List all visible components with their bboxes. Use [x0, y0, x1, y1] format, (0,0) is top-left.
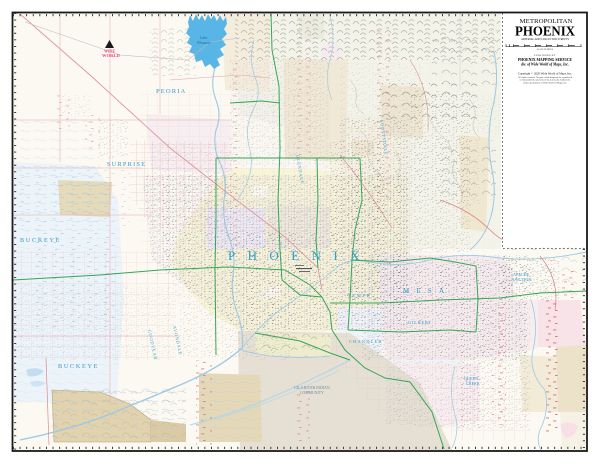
svg-text:GILA RIVER INDIAN: GILA RIVER INDIAN [294, 386, 330, 390]
svg-text:MESA: MESA [403, 287, 451, 295]
svg-text:PHOENIX: PHOENIX [228, 248, 372, 263]
svg-text:Lake: Lake [199, 36, 208, 40]
svg-text:ARTERIAL AND COLLECTOR STREETS: ARTERIAL AND COLLECTOR STREETS [521, 37, 569, 41]
svg-text:PEORIA: PEORIA [156, 88, 186, 95]
svg-text:WORLD: WORLD [102, 53, 121, 58]
svg-text:All rights reserved. No part o: All rights reserved. No part of this map… [518, 76, 573, 79]
svg-text:COMMUNITY: COMMUNITY [300, 391, 324, 395]
svg-text:written permission of Wide Wor: written permission of Wide World of Maps… [523, 81, 568, 84]
svg-text:SCALE IN MILES: SCALE IN MILES [537, 48, 554, 51]
svg-text:TEMPE: TEMPE [348, 293, 371, 298]
svg-text:CREEK: CREEK [466, 381, 480, 386]
svg-text:SURPRISE: SURPRISE [107, 161, 146, 168]
svg-text:Pleasant: Pleasant [196, 41, 211, 45]
svg-text:BUCKEYE: BUCKEYE [20, 237, 61, 244]
svg-text:div. of Wide World of Maps, In: div. of Wide World of Maps, Inc. [521, 62, 569, 66]
svg-text:PHOENIX MAPPING SERVICE: PHOENIX MAPPING SERVICE [518, 57, 572, 62]
svg-text:or transmitted in any form or: or transmitted in any form or by any mea… [520, 79, 571, 82]
svg-text:GILBERT: GILBERT [408, 320, 432, 325]
svg-text:BUCKEYE: BUCKEYE [58, 363, 99, 370]
svg-text:CHANDLER: CHANDLER [349, 339, 383, 344]
svg-text:JUNCTION: JUNCTION [511, 277, 531, 282]
